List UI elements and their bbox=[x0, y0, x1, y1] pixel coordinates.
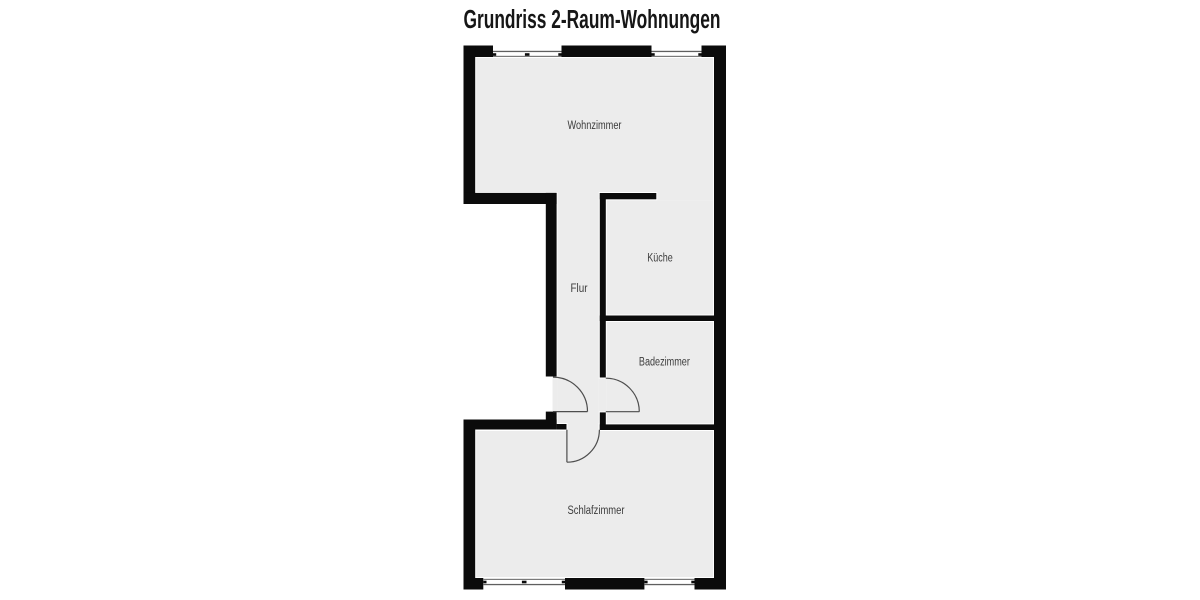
svg-text:Küche: Küche bbox=[647, 253, 673, 265]
svg-text:Wohnzimmer: Wohnzimmer bbox=[568, 120, 622, 132]
svg-text:Badezimmer: Badezimmer bbox=[639, 357, 690, 369]
svg-text:Schlafzimmer: Schlafzimmer bbox=[568, 505, 625, 517]
svg-text:Flur: Flur bbox=[571, 283, 588, 295]
svg-text:Grundriss 2-Raum-Wohnungen: Grundriss 2-Raum-Wohnungen bbox=[464, 6, 721, 34]
